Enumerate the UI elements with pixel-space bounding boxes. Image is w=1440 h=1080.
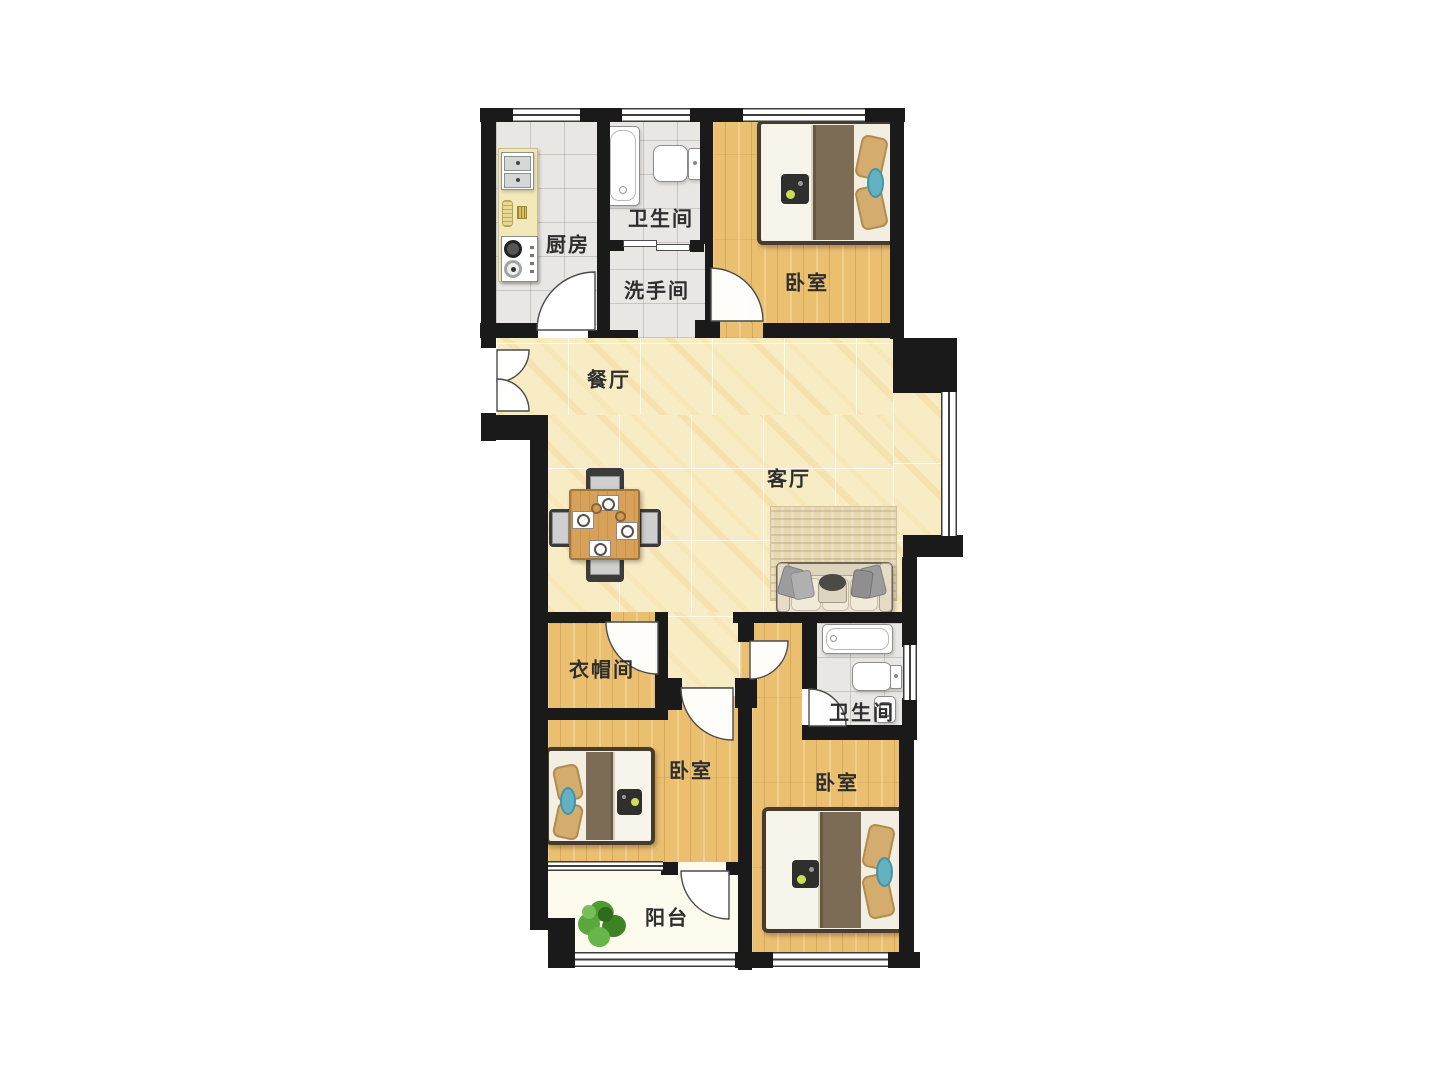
sliding-window bbox=[548, 861, 663, 871]
tray-dot bbox=[622, 795, 626, 799]
wall bbox=[690, 108, 743, 122]
window bbox=[513, 108, 580, 122]
toilet-button bbox=[693, 161, 697, 165]
floor-dining bbox=[496, 338, 893, 416]
wall bbox=[738, 678, 752, 970]
wall bbox=[700, 122, 713, 244]
plate-icon bbox=[602, 498, 615, 511]
tray-dot bbox=[797, 875, 806, 884]
window bbox=[773, 952, 888, 967]
floor-living-bay bbox=[893, 392, 942, 536]
chair-seat bbox=[590, 559, 620, 575]
toilet-button bbox=[894, 674, 898, 678]
double-bed-icon bbox=[757, 120, 895, 245]
wall bbox=[735, 952, 773, 968]
placemat bbox=[616, 522, 638, 540]
tray-dot bbox=[631, 798, 639, 806]
room-label-balcony: 阳台 bbox=[645, 902, 689, 931]
wall bbox=[597, 122, 610, 332]
room-label-kitchen: 厨房 bbox=[546, 229, 590, 258]
sliding-door bbox=[656, 244, 690, 251]
floor-bath-bottom-doorway bbox=[802, 688, 819, 726]
stove-knobs bbox=[530, 243, 534, 273]
bed-blanket bbox=[586, 752, 613, 840]
room-label-bathroom-bottom: 卫生间 bbox=[829, 697, 895, 726]
chair-seat bbox=[552, 512, 569, 544]
double-bed-icon bbox=[545, 747, 655, 845]
burner-center bbox=[511, 267, 516, 272]
wall bbox=[738, 612, 754, 642]
wall bbox=[726, 862, 745, 875]
kitchen-item bbox=[517, 206, 527, 219]
wall bbox=[661, 862, 678, 875]
bathtub-drain bbox=[830, 635, 837, 642]
room-label-bedroom-top: 卧室 bbox=[785, 267, 829, 296]
sink-drain bbox=[516, 178, 520, 182]
wall bbox=[733, 612, 904, 623]
sofa-dark-cushion bbox=[819, 574, 846, 591]
plant-leaf bbox=[598, 907, 613, 922]
throw-pillow-icon bbox=[850, 569, 874, 600]
floor-bedroom-middle-doorway bbox=[681, 687, 733, 697]
window bbox=[575, 952, 735, 967]
round-cushion-icon bbox=[867, 168, 884, 198]
wall bbox=[890, 122, 904, 339]
plant-leaf bbox=[582, 905, 596, 919]
wall bbox=[888, 952, 920, 968]
wall bbox=[705, 243, 713, 325]
window bbox=[743, 108, 865, 122]
wall bbox=[609, 240, 624, 251]
bowl-icon bbox=[591, 503, 602, 514]
bed-blanket bbox=[813, 125, 854, 240]
tray-dot bbox=[809, 867, 814, 872]
bowl-icon bbox=[615, 511, 626, 522]
window bbox=[622, 108, 690, 122]
window bbox=[903, 645, 917, 700]
room-label-dining: 餐厅 bbox=[587, 364, 631, 393]
bed-tray-icon bbox=[792, 860, 819, 888]
wall bbox=[802, 623, 817, 689]
placemat bbox=[572, 511, 594, 529]
wall bbox=[580, 108, 622, 122]
wall bbox=[480, 323, 538, 338]
round-cushion-icon bbox=[560, 787, 576, 815]
plate-icon bbox=[577, 514, 590, 527]
floor-entry-gap bbox=[481, 347, 497, 414]
floor-plan: 厨房 卫生间 洗手间 卧室 餐厅 客厅 衣帽间 卧室 卫生间 卧室 阳台 bbox=[0, 0, 1440, 1080]
sink-drain bbox=[516, 161, 520, 165]
wall bbox=[548, 918, 575, 968]
plate-icon bbox=[594, 543, 607, 556]
wall bbox=[547, 612, 611, 623]
toilet-icon bbox=[852, 662, 892, 691]
floor-bedroom-top-doorway bbox=[713, 323, 765, 338]
wall bbox=[530, 708, 668, 720]
wall bbox=[665, 678, 682, 710]
window bbox=[941, 392, 957, 536]
wall bbox=[865, 108, 905, 122]
floor-bedroom-right-doorway bbox=[740, 641, 755, 680]
wall bbox=[763, 323, 904, 338]
floor-balcony bbox=[547, 870, 739, 954]
stove-burner bbox=[504, 240, 522, 258]
bed-tray-icon bbox=[781, 174, 809, 204]
wall bbox=[695, 320, 720, 338]
wall bbox=[893, 338, 957, 393]
wall bbox=[530, 438, 548, 930]
bed-blanket bbox=[820, 812, 861, 928]
wall bbox=[802, 725, 917, 740]
sliding-door bbox=[623, 240, 657, 247]
round-cushion-icon bbox=[876, 857, 893, 887]
room-label-cloakroom: 衣帽间 bbox=[569, 654, 635, 683]
room-label-bedroom-middle: 卧室 bbox=[669, 755, 713, 784]
wall bbox=[902, 557, 917, 647]
wall bbox=[899, 740, 914, 954]
placemat bbox=[589, 540, 611, 557]
room-label-living: 客厅 bbox=[767, 463, 811, 492]
double-bed-icon bbox=[762, 807, 904, 933]
floor-kitchen-threshold bbox=[537, 323, 592, 338]
floor-balcony-doorway bbox=[678, 862, 729, 871]
room-label-bedroom-right: 卧室 bbox=[815, 767, 859, 796]
potted-plant-icon bbox=[578, 901, 626, 951]
floor-cloakroom-doorway bbox=[610, 612, 656, 623]
room-label-bathroom-top: 卫生间 bbox=[628, 203, 694, 232]
toilet-icon bbox=[653, 145, 688, 182]
wall bbox=[481, 108, 496, 348]
cutting-board-icon bbox=[502, 200, 513, 227]
tray-dot bbox=[798, 181, 803, 186]
bathtub-drain bbox=[619, 186, 627, 194]
room-label-washroom: 洗手间 bbox=[624, 275, 690, 304]
wall bbox=[588, 330, 638, 338]
tray-dot bbox=[786, 190, 795, 199]
wall bbox=[481, 415, 548, 440]
bed-tray-icon bbox=[617, 789, 642, 815]
chair-seat bbox=[641, 512, 658, 544]
wall bbox=[903, 535, 963, 557]
plate-icon bbox=[621, 525, 634, 538]
